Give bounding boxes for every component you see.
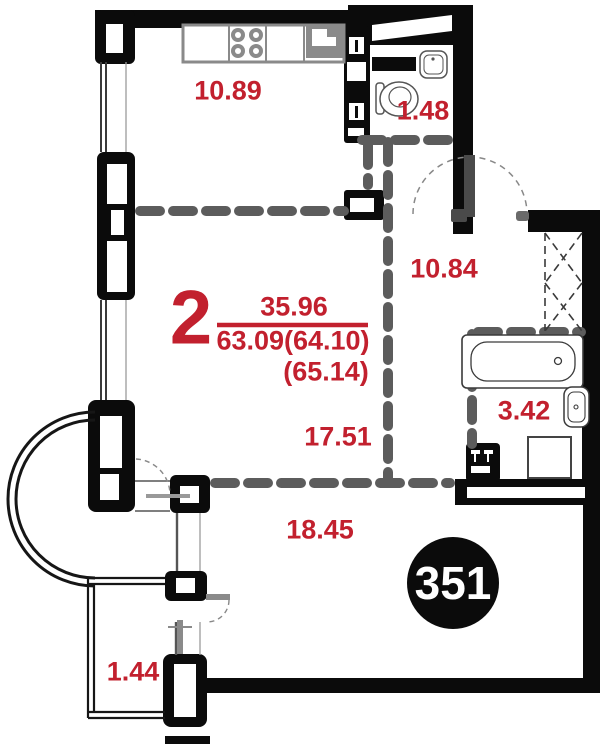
bedroom-area-label: 17.51 (304, 422, 372, 453)
balcony-area-label: 1.44 (107, 657, 160, 688)
small-balcony-door-leaf (206, 594, 230, 600)
wc-area-label: 1.48 (397, 96, 450, 127)
entrance-door-leaf (464, 155, 475, 217)
bathtub-icon (462, 335, 583, 388)
floor-plan: 10.89 1.48 10.84 3.42 17.51 18.45 1.44 2… (0, 0, 600, 744)
total-area: 63.09(64.10) (216, 326, 369, 357)
kitchen-sink-icon (306, 24, 344, 58)
small-balcony-railing (87, 578, 165, 718)
hallway-area-label: 10.84 (410, 254, 478, 285)
total-area-extended: (65.14) (283, 357, 369, 388)
living-area-label: 18.45 (286, 515, 354, 546)
round-balcony-door-arc (136, 459, 170, 494)
rooms-count: 2 (170, 275, 212, 362)
living-area-total: 35.96 (260, 292, 328, 323)
washing-machine-icon (528, 437, 571, 478)
wardrobe-icon (545, 233, 582, 331)
bathroom-sink-icon (564, 387, 589, 427)
unit-number-badge: 351 (407, 537, 499, 629)
wc-sink-icon (420, 51, 447, 78)
bathroom-area-label: 3.42 (498, 396, 551, 427)
round-balcony-railing (8, 412, 95, 586)
unit-number: 351 (415, 556, 492, 610)
kitchen-area-label: 10.89 (194, 76, 262, 107)
small-balcony-door-arc (207, 600, 229, 622)
